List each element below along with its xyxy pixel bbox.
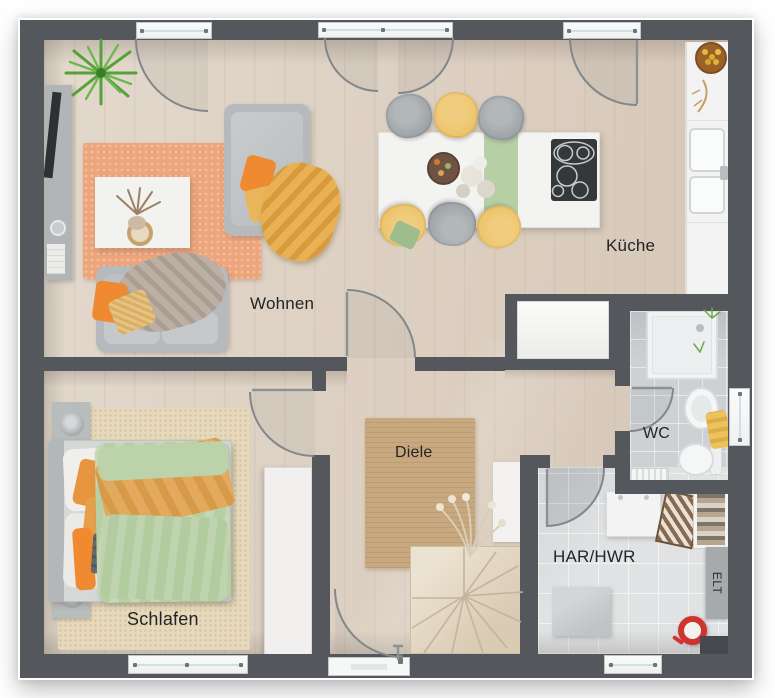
window-glass <box>739 392 741 441</box>
entrance-door-panel <box>351 664 387 670</box>
counter-seam-1 <box>687 120 728 121</box>
wall-har-left <box>520 455 538 654</box>
room-label-wc: WC <box>643 425 670 443</box>
door-handle <box>204 29 208 33</box>
room-label-diele: Diele <box>395 444 432 462</box>
washer-knob-2 <box>644 495 649 500</box>
room-label-schlafen: Schlafen <box>127 609 199 630</box>
double-door-top <box>318 22 453 38</box>
terrace-door-wohnen <box>136 22 212 39</box>
sink-basin-bottom <box>689 176 725 214</box>
window-glass <box>608 664 658 666</box>
sink-basin-top <box>689 128 725 172</box>
har-window <box>604 655 662 674</box>
door-handle <box>322 28 326 32</box>
decor-bowl <box>127 220 153 246</box>
floor-plan: Wohnen Küche Diele Schlafen WC HAR/HWR E… <box>0 0 775 698</box>
wall-stub-schlafen-door <box>312 357 326 391</box>
window-handle <box>133 663 137 667</box>
wardrobe <box>264 467 312 657</box>
wall-wohnen-diele <box>415 357 505 371</box>
stairs <box>410 546 524 654</box>
door-glass <box>568 30 636 32</box>
cooktop <box>551 139 597 201</box>
wall-wohnen-schlafen <box>44 357 347 371</box>
room-label-har-hwr: HAR/HWR <box>553 547 636 567</box>
record-player <box>50 220 66 236</box>
washing-machine <box>606 491 661 537</box>
door-handle <box>140 29 144 33</box>
door-glass <box>326 29 446 31</box>
wall-har-top-hinge <box>538 455 550 468</box>
window-handle <box>185 663 189 667</box>
window-handle <box>239 663 243 667</box>
room-label-elt: ELT <box>710 561 724 605</box>
entrance-door-handle <box>398 654 403 664</box>
wall-har-top-latch <box>603 455 617 468</box>
fruit-bowl <box>695 42 727 74</box>
duvet-green-top-fold <box>97 441 229 482</box>
wc-window <box>729 388 750 446</box>
headboard <box>48 440 64 602</box>
window-handle <box>609 663 613 667</box>
wall-schlafen-diele <box>312 455 330 654</box>
window-handle <box>738 392 742 396</box>
wall-exterior-right <box>728 20 752 678</box>
toilet-bowl <box>678 443 714 476</box>
door-glass <box>141 30 208 32</box>
room-label-kueche: Küche <box>606 236 655 256</box>
shower-drain <box>696 324 704 332</box>
wall-exterior-left <box>20 20 44 678</box>
lamp-top <box>60 412 84 436</box>
duvet-green-fold <box>99 514 230 602</box>
wall-wc-bottom <box>615 480 728 494</box>
counter-seam-2 <box>687 222 728 223</box>
book-stack <box>47 244 65 274</box>
washer-knob-1 <box>618 495 623 500</box>
sink-faucet <box>720 166 728 180</box>
entrance-door <box>328 657 410 676</box>
door-handle <box>381 28 385 32</box>
centerpiece-bowl <box>427 152 460 185</box>
storage-shelf <box>694 491 728 548</box>
door-handle <box>633 29 637 33</box>
wall-wc-top <box>618 294 728 311</box>
dark-crate <box>700 636 728 654</box>
kitchen-door-top <box>563 22 641 39</box>
bedroom-window <box>128 655 248 674</box>
door-handle <box>445 28 449 32</box>
stair-side-panel <box>493 462 521 542</box>
hall-cabinet <box>517 301 609 359</box>
utility-box <box>552 587 610 636</box>
window-handle <box>738 438 742 442</box>
door-handle <box>567 29 571 33</box>
window-handle <box>653 663 657 667</box>
room-label-wohnen: Wohnen <box>250 294 314 314</box>
